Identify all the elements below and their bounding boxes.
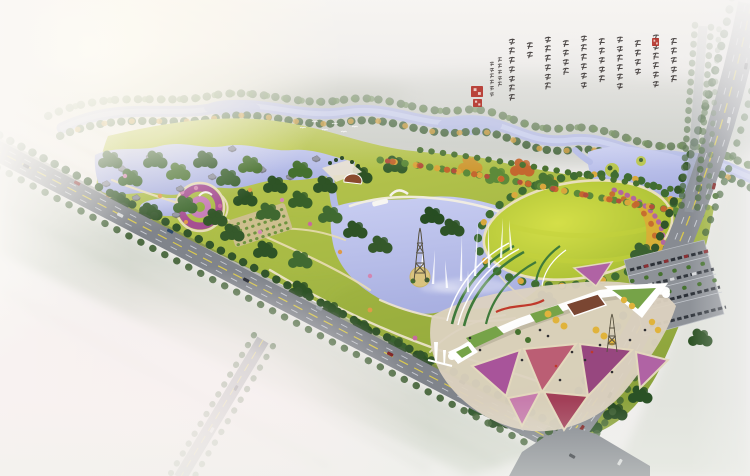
shell-pavilion bbox=[344, 174, 362, 184]
park-aerial-rendering bbox=[0, 0, 750, 476]
rendering-canvas bbox=[0, 0, 750, 476]
